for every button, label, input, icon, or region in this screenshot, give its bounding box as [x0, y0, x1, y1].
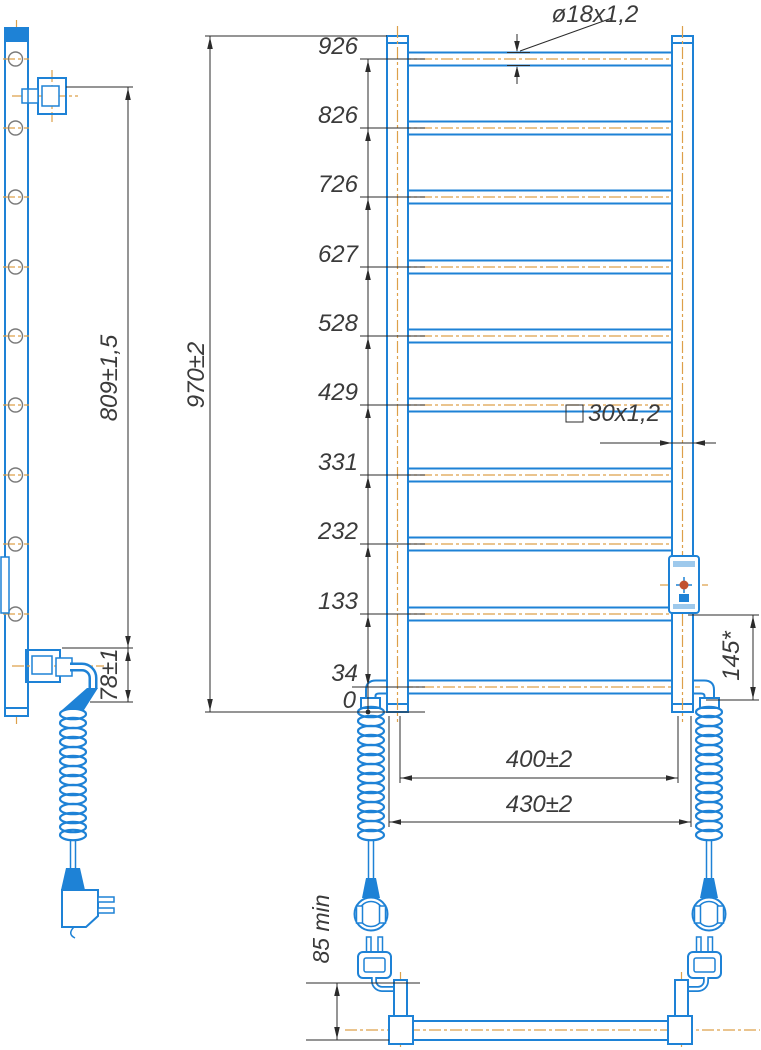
- dim-label-rung-0: 0: [343, 688, 356, 714]
- heater-unit-side-profile: [1, 557, 9, 613]
- bottom-rung-cable-loop: [361, 681, 719, 709]
- dim-label-rung-133: 133: [318, 589, 358, 615]
- dim-label-heater-ref: 145*: [719, 626, 745, 686]
- spiral-cord-side: [60, 709, 86, 840]
- dim-label-post-spec: 30x1,2: [588, 401, 660, 427]
- dim-label-inner-width: 400±2: [488, 747, 590, 773]
- plug-front-view-right: [688, 937, 721, 978]
- dim-label-plug-clearance: 85 min: [308, 888, 334, 970]
- square-section-symbol: [566, 405, 583, 422]
- dim-label-rung-926: 926: [318, 34, 358, 60]
- dim-label-rung-627: 627: [318, 242, 358, 268]
- dim-label-rung-528: 528: [318, 311, 358, 337]
- dim-label-outer-width: 430±2: [488, 792, 590, 818]
- rungs: [399, 53, 681, 621]
- linework-layer: [0, 0, 761, 1050]
- plug-top-view-right: [693, 878, 726, 931]
- dimension-layer: [62, 18, 759, 1040]
- side-view: [1, 20, 114, 938]
- indicator-dot: [680, 581, 689, 590]
- dim-label-bracket-span: 809±1,5: [97, 326, 123, 430]
- dim-label-rung-726: 726: [318, 172, 358, 198]
- dim-label-rung-232: 232: [318, 519, 358, 545]
- heater-control-unit: [660, 556, 708, 613]
- dim-label-rung-331: 331: [318, 450, 358, 476]
- drawing-canvas: ø18x1,2 30x1,2 926 826 726 627 528 429 3…: [0, 0, 761, 1050]
- bottom-view: [345, 937, 760, 1050]
- dim-label-overall-height: 970±2: [184, 330, 210, 420]
- spiral-cord-left: [358, 707, 384, 840]
- dim-label-bracket-bottom-offset: 78±1: [97, 643, 123, 707]
- dim-label-rung-34: 34: [331, 661, 358, 687]
- plug-front-view-left: [358, 937, 391, 978]
- dim-label-tube-spec: ø18x1,2: [540, 2, 650, 28]
- spiral-cord-right: [696, 707, 722, 840]
- dim-label-rung-429: 429: [318, 380, 358, 406]
- plug-side-view: [62, 890, 114, 938]
- plug-top-view-left: [355, 878, 388, 931]
- dim-label-rung-826: 826: [318, 103, 358, 129]
